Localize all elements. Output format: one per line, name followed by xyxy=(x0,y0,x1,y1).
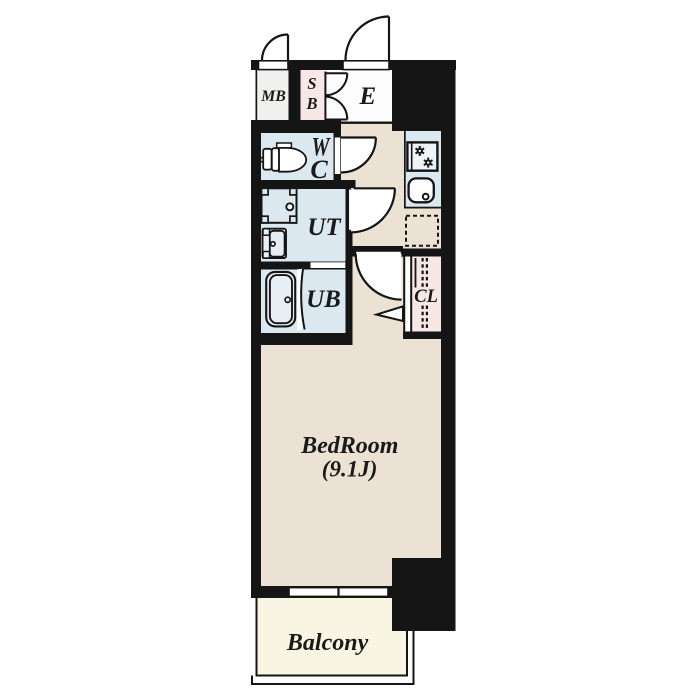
svg-text:E: E xyxy=(358,83,376,110)
svg-text:BedRoom: BedRoom xyxy=(300,433,398,459)
svg-text:Balcony: Balcony xyxy=(286,630,369,656)
svg-text:S: S xyxy=(307,74,316,93)
svg-text:B: B xyxy=(305,94,317,113)
svg-text:UT: UT xyxy=(307,214,342,241)
svg-text:MB: MB xyxy=(260,88,286,105)
svg-text:C: C xyxy=(310,155,328,184)
svg-text:CL: CL xyxy=(414,287,438,307)
svg-text:(9.1J): (9.1J) xyxy=(322,456,378,481)
svg-text:UB: UB xyxy=(306,286,341,313)
